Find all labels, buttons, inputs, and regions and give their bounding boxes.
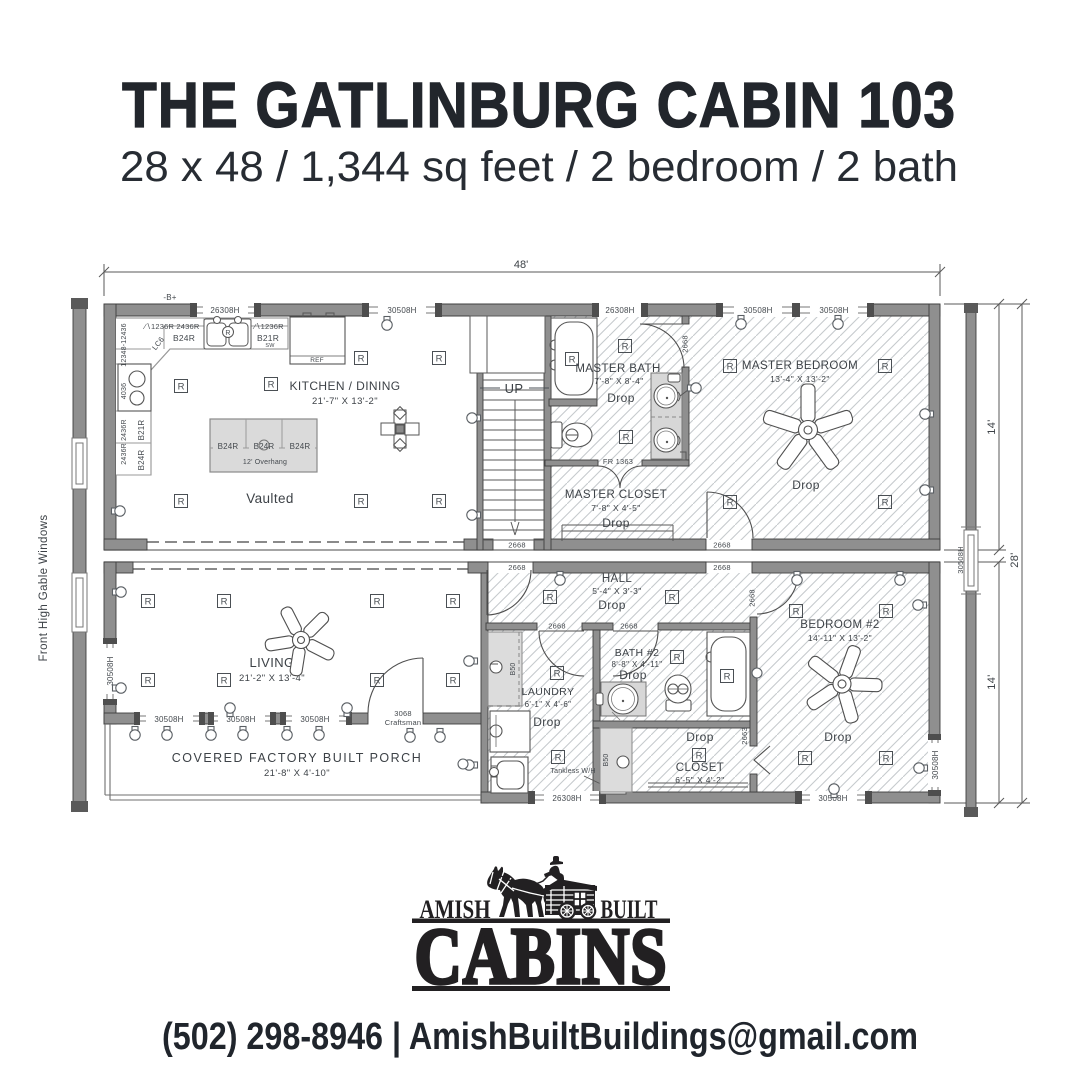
svg-text:2668: 2668 — [713, 541, 731, 550]
svg-text:7'-8" X 8'-4": 7'-8" X 8'-4" — [594, 376, 643, 386]
svg-text:-B+: -B+ — [163, 293, 176, 302]
svg-text:14': 14' — [986, 419, 998, 435]
svg-text:MASTER BATH: MASTER BATH — [575, 363, 660, 375]
svg-text:Craftsman: Craftsman — [385, 718, 421, 727]
svg-text:BEDROOM #2: BEDROOM #2 — [800, 619, 879, 631]
svg-text:CLOSET: CLOSET — [676, 762, 724, 774]
svg-text:Drop: Drop — [686, 730, 714, 744]
svg-text:Tankless W/H: Tankless W/H — [550, 768, 595, 775]
svg-text:HALL: HALL — [602, 573, 633, 585]
svg-text:2668: 2668 — [548, 622, 566, 631]
svg-text:2663: 2663 — [740, 727, 749, 745]
svg-text:6'-5" X 4'-2": 6'-5" X 4'-2" — [675, 775, 724, 785]
svg-text:Drop: Drop — [533, 715, 561, 729]
svg-text:26308H: 26308H — [552, 794, 581, 803]
svg-text:Drop: Drop — [792, 478, 820, 492]
svg-text:2668: 2668 — [508, 541, 526, 550]
svg-text:B24R: B24R — [173, 333, 195, 343]
svg-text:R: R — [225, 330, 230, 337]
svg-text:21'-8" X 4'-10": 21'-8" X 4'-10" — [264, 768, 330, 779]
svg-text:UP: UP — [505, 381, 524, 396]
svg-text:48': 48' — [514, 259, 528, 271]
svg-text:Drop: Drop — [607, 391, 635, 405]
svg-text:26308H: 26308H — [605, 306, 634, 315]
svg-text:12' Overhang: 12' Overhang — [243, 459, 287, 466]
svg-text:B50: B50 — [603, 753, 610, 766]
svg-text:26308H: 26308H — [210, 306, 239, 315]
svg-text:B50: B50 — [510, 662, 517, 675]
svg-text:COVERED FACTORY BUILT PORCH: COVERED FACTORY BUILT PORCH — [172, 751, 423, 765]
svg-text:30508H: 30508H — [931, 750, 940, 779]
svg-text:Drop: Drop — [598, 598, 626, 612]
svg-text:THE GATLINBURG CABIN 103: THE GATLINBURG CABIN 103 — [122, 69, 956, 141]
svg-text:MASTER CLOSET: MASTER CLOSET — [565, 489, 667, 501]
svg-text:5'-4" X 3'-3": 5'-4" X 3'-3" — [592, 586, 641, 596]
svg-text:30508H: 30508H — [154, 715, 183, 724]
svg-text:2668: 2668 — [748, 589, 757, 607]
svg-text:4036: 4036 — [121, 383, 128, 399]
svg-text:B24R: B24R — [290, 442, 311, 451]
svg-text:7'-8" X 4'-5": 7'-8" X 4'-5" — [591, 503, 640, 513]
svg-text:30508H: 30508H — [106, 656, 115, 685]
svg-text:FR 1363: FR 1363 — [603, 457, 633, 466]
svg-text:21'-7" X 13'-2": 21'-7" X 13'-2" — [312, 396, 378, 407]
svg-text:28': 28' — [1009, 552, 1021, 568]
svg-text:2668: 2668 — [620, 622, 638, 631]
svg-text:6'-1" X 4'-6": 6'-1" X 4'-6" — [525, 700, 572, 709]
svg-text:∕∖1236R: ∕∖1236R — [252, 322, 284, 331]
svg-text:3068: 3068 — [394, 709, 412, 718]
svg-text:∕∖1236R 2436R: ∕∖1236R 2436R — [143, 322, 200, 331]
svg-text:2668: 2668 — [508, 563, 526, 572]
svg-text:B21R: B21R — [257, 333, 279, 343]
svg-text:30508H: 30508H — [743, 306, 772, 315]
svg-text:SW: SW — [265, 343, 275, 349]
svg-text:B24R: B24R — [218, 442, 239, 451]
svg-text:MASTER BEDROOM: MASTER BEDROOM — [742, 360, 858, 372]
svg-text:Drop: Drop — [824, 730, 852, 744]
svg-text:B24R: B24R — [137, 450, 146, 471]
svg-text:KITCHEN / DINING: KITCHEN / DINING — [289, 379, 400, 393]
svg-text:2436R 2436R: 2436R 2436R — [121, 419, 128, 464]
svg-text:30508H: 30508H — [956, 546, 965, 573]
svg-text:30508H: 30508H — [300, 715, 329, 724]
svg-text:12348-12436: 12348-12436 — [121, 323, 128, 366]
svg-text:28 x 48 / 1,344 sq feet / 2 be: 28 x 48 / 1,344 sq feet / 2 bedroom / 2 … — [120, 143, 958, 191]
svg-text:LIVING: LIVING — [249, 655, 294, 670]
svg-text:2668: 2668 — [681, 335, 690, 353]
svg-text:Drop: Drop — [602, 516, 630, 530]
svg-text:30508H: 30508H — [819, 306, 848, 315]
svg-text:LAUNDRY: LAUNDRY — [522, 686, 575, 698]
svg-text:B21R: B21R — [137, 420, 146, 441]
svg-text:(502) 298-8946 | AmishBuiltBui: (502) 298-8946 | AmishBuiltBuildings@gma… — [162, 1016, 918, 1058]
svg-text:BATH #2: BATH #2 — [615, 647, 660, 659]
svg-text:2668: 2668 — [713, 563, 731, 572]
svg-text:14': 14' — [986, 674, 998, 690]
svg-text:Vaulted: Vaulted — [246, 491, 294, 506]
svg-text:14'-11" X 13'-2": 14'-11" X 13'-2" — [808, 633, 872, 643]
svg-text:30508H: 30508H — [387, 306, 416, 315]
svg-text:13'-4" X 13'-2": 13'-4" X 13'-2" — [770, 374, 830, 384]
svg-text:Front High Gable Windows: Front High Gable Windows — [38, 514, 50, 661]
svg-text:Drop: Drop — [619, 668, 647, 682]
svg-text:REF: REF — [310, 357, 324, 364]
